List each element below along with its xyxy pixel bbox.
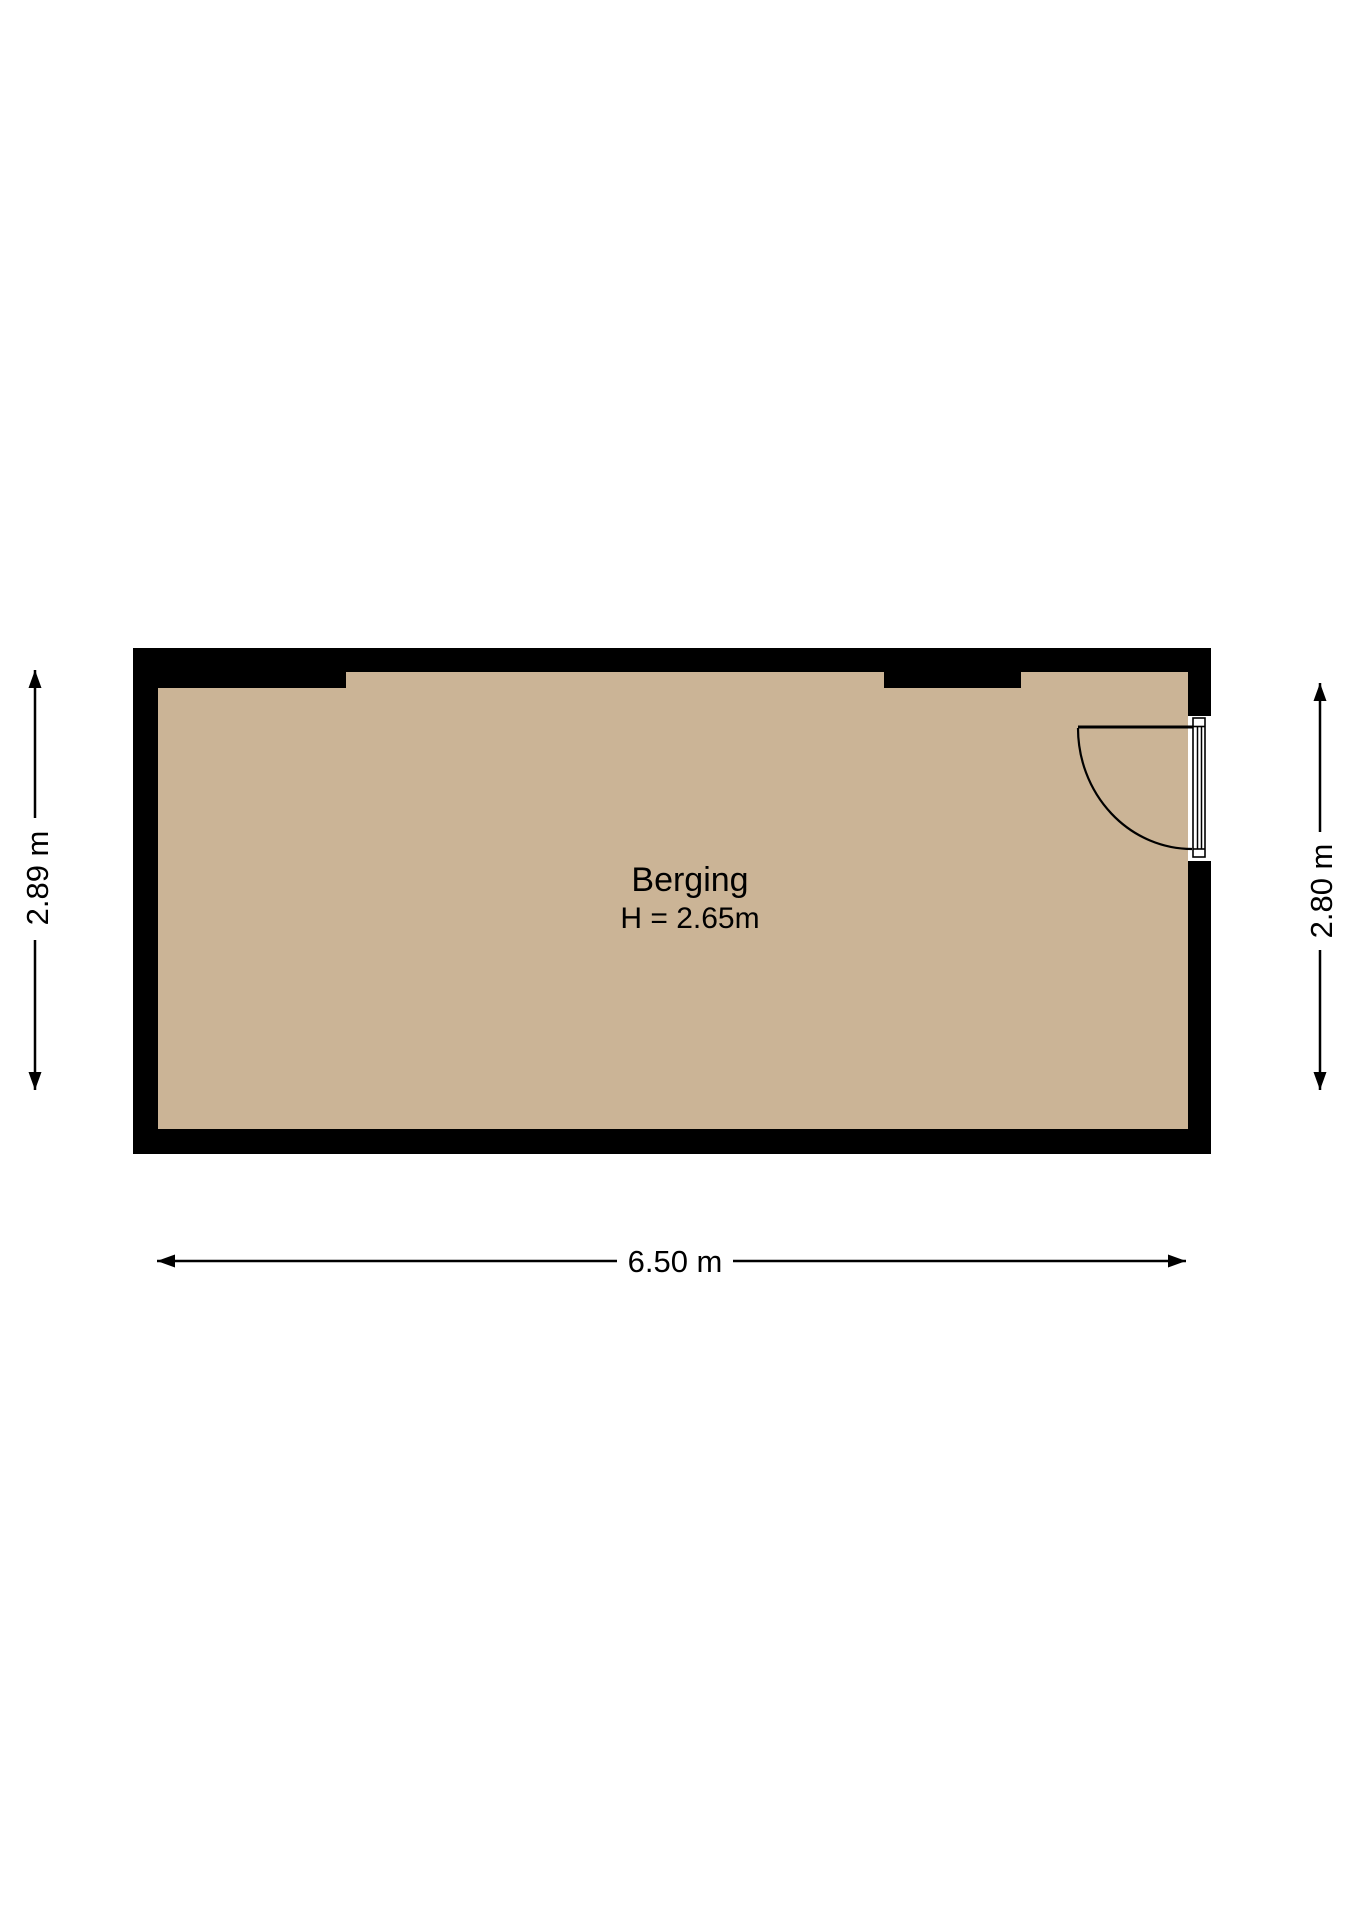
wall-top-notch bbox=[884, 672, 1021, 688]
floorplan-svg: 2.89 m 2.80 m 6.50 m Berging H = 2.65m bbox=[0, 0, 1358, 1920]
wall-bottom bbox=[133, 1129, 1211, 1154]
wall-left bbox=[133, 648, 158, 1154]
floorplan-canvas: 2.89 m 2.80 m 6.50 m Berging H = 2.65m bbox=[0, 0, 1358, 1920]
room-floor bbox=[158, 672, 1188, 1129]
dimension-left-label: 2.89 m bbox=[20, 831, 55, 926]
room-name-label: Berging bbox=[631, 861, 748, 899]
wall-top bbox=[133, 648, 1211, 672]
dimension-bottom-label: 6.50 m bbox=[628, 1244, 723, 1279]
wall-right-above-door bbox=[1188, 648, 1211, 716]
wall-right-below-door bbox=[1188, 861, 1211, 1154]
door-frame bbox=[1193, 718, 1205, 857]
room-height-label: H = 2.65m bbox=[620, 902, 759, 935]
wall-top-thick-left-section bbox=[133, 672, 346, 688]
dimension-right-label: 2.80 m bbox=[1304, 844, 1339, 939]
